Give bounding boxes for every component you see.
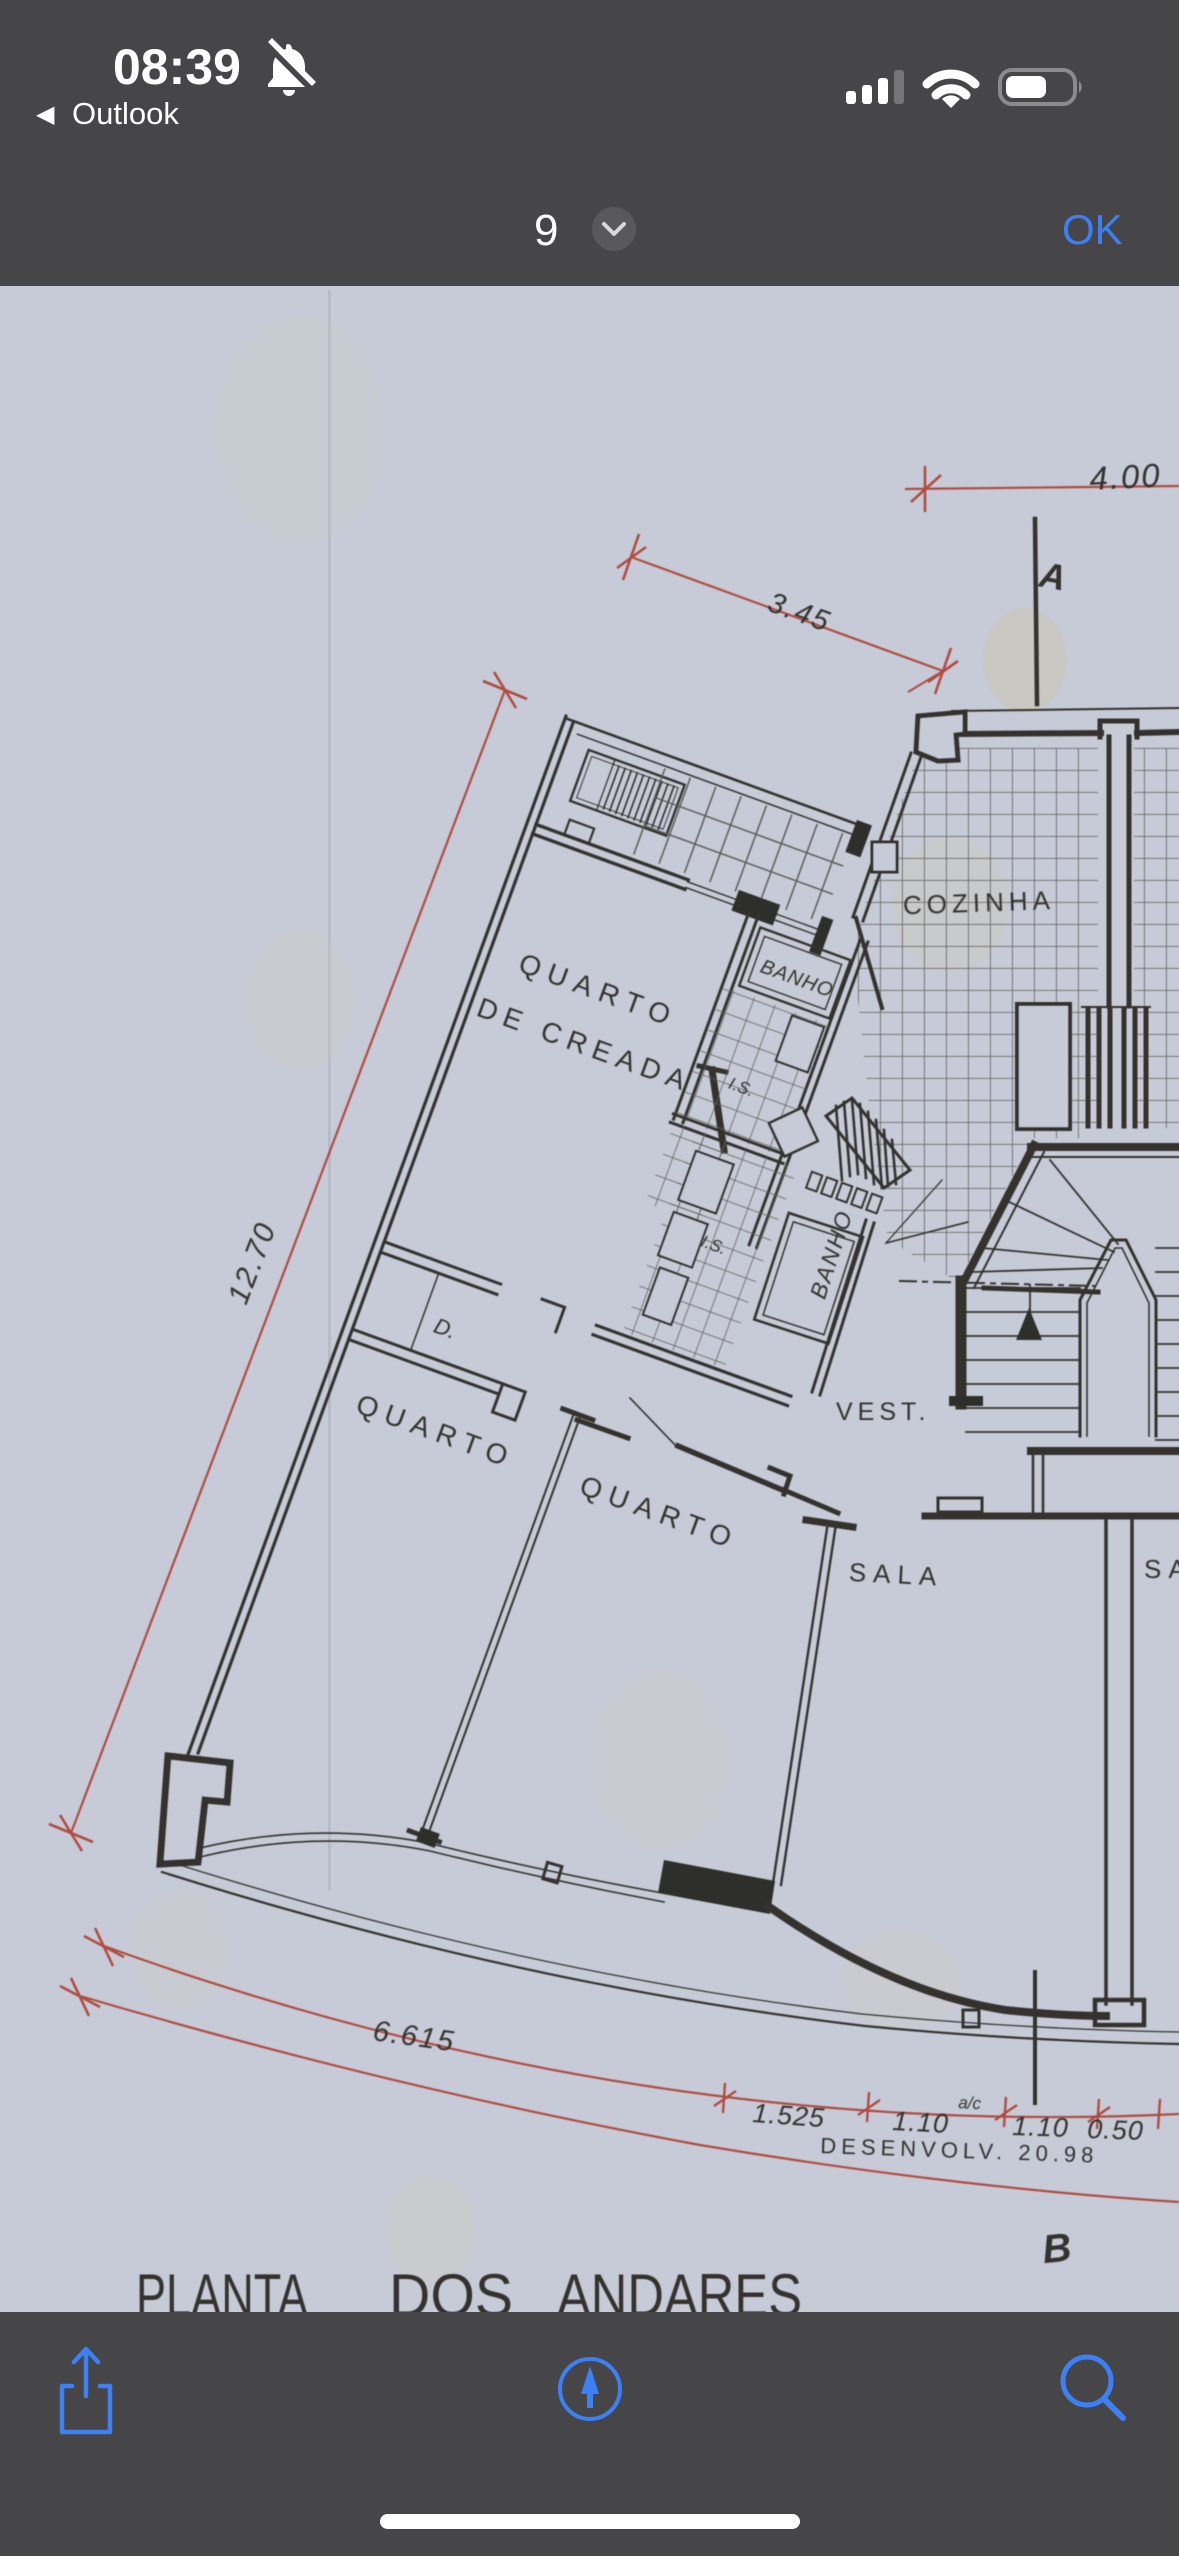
svg-text:B: B: [1040, 2225, 1073, 2272]
svg-text:SA: SA: [1144, 1554, 1179, 1584]
svg-text:COZINHA: COZINHA: [902, 885, 1055, 920]
svg-text:Outlook: Outlook: [72, 96, 179, 131]
svg-text:OK: OK: [1062, 206, 1123, 253]
svg-text:1.10: 1.10: [892, 2106, 950, 2139]
svg-text:0.50: 0.50: [1087, 2114, 1145, 2146]
svg-text:4.00: 4.00: [1088, 456, 1162, 497]
svg-text:a/c: a/c: [958, 2093, 982, 2113]
svg-text:1.525: 1.525: [752, 2098, 826, 2133]
svg-text:08:39: 08:39: [113, 39, 241, 95]
svg-text:VEST.: VEST.: [836, 1398, 930, 1426]
svg-text:◀: ◀: [36, 101, 55, 128]
svg-text:SALA: SALA: [848, 1557, 944, 1592]
svg-text:9: 9: [534, 206, 558, 255]
svg-text:1.10: 1.10: [1012, 2111, 1070, 2143]
